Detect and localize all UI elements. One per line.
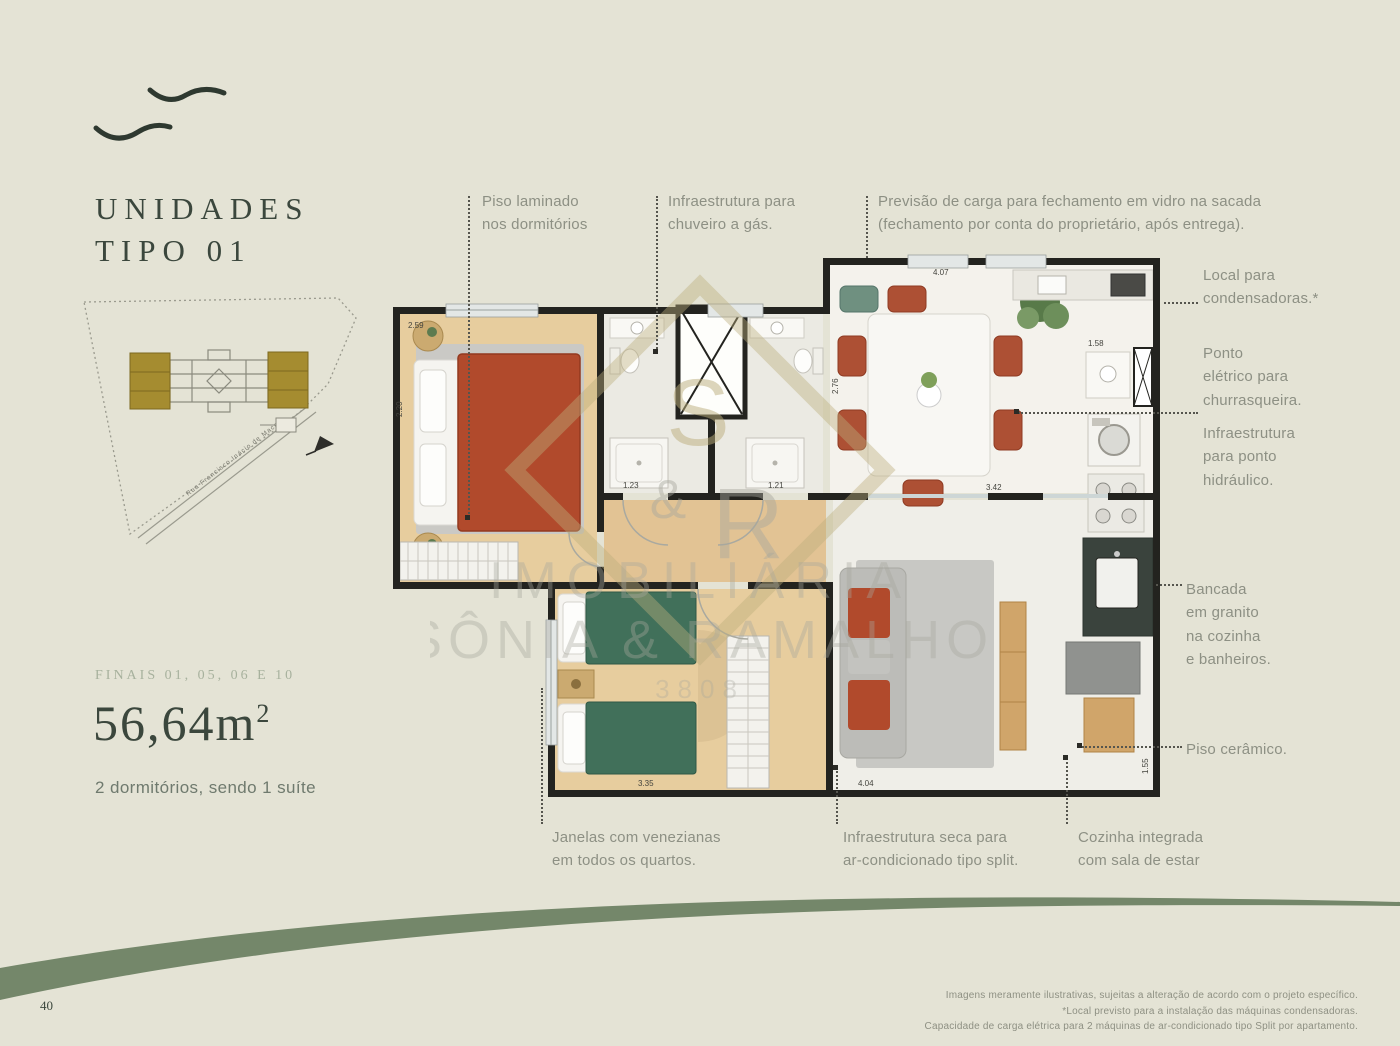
disclaimer-line3: Capacidade de carga elétrica para 2 máqu… [798,1019,1358,1035]
finais-label: FINAIS 01, 05, 06 E 10 [95,668,295,684]
callout-ponto-hidraulico: Infraestrutura para ponto hidráulico. [1203,422,1295,492]
callout-churrasqueira: Ponto elétrico para churrasqueira. [1203,342,1302,412]
site-key-plan: Rua Francisco Inácio de Macedo [70,290,380,550]
wood-cabinet [1084,698,1134,752]
leader-split [836,768,838,824]
page-number: 40 [40,998,53,1014]
gray-cabinet [1066,642,1140,694]
leader-dot [1063,755,1068,760]
callout-chuveiro-gas: Infraestrutura para chuveiro a gás. [668,190,795,237]
birds-logo-icon [92,74,232,150]
callout-condensadoras: Local para condensadoras.* [1203,264,1319,311]
leader-dot [1014,409,1019,414]
building-footprint [170,350,268,412]
leader-dot [1077,743,1082,748]
bedroom2-bed1 [586,592,696,664]
unit-area: 56,64m2 [93,694,269,752]
bedroom2-bed2 [586,702,696,774]
unit-description: 2 dormitórios, sendo 1 suíte [95,778,316,798]
leader-cozinha [1066,758,1068,824]
barbecue-grill [1111,274,1145,296]
svg-text:2.59: 2.59 [408,321,424,330]
north-arrow-icon [306,436,334,455]
svg-text:1.23: 1.23 [623,481,639,490]
disclaimer: Imagens meramente ilustrativas, sujeitas… [798,988,1358,1035]
disclaimer-line1: Imagens meramente ilustrativas, sujeitas… [798,988,1358,1004]
svg-text:4.04: 4.04 [858,779,874,788]
leader-piso-ceramico [1082,746,1182,748]
leader-condensadoras [1164,302,1198,304]
stove [1088,474,1144,532]
page-title: UNIDADES TIPO 01 [95,188,309,272]
floor-plan: 2.59 2.20 1.23 1.21 4.07 2.76 1.58 3.42 … [388,252,1163,802]
disclaimer-line2: *Local previsto para a instalação das má… [798,1004,1358,1020]
page-title-line2: TIPO 01 [95,230,309,272]
svg-text:3.35: 3.35 [638,779,654,788]
svg-text:3.42: 3.42 [986,483,1002,492]
sideboard [1000,602,1026,750]
hall-floor [604,500,826,582]
shaft [678,307,745,417]
callout-piso-laminado: Piso laminado nos dormitórios [482,190,588,237]
svg-text:1.55: 1.55 [1141,758,1150,774]
plot-boundary [84,298,356,534]
svg-text:1.58: 1.58 [1088,339,1104,348]
street-label: Rua Francisco Inácio de Macedo [185,415,288,497]
leader-churrasqueira [1018,412,1198,414]
leader-piso-laminado [468,196,470,518]
suite-bed [458,354,580,531]
svg-text:1.21: 1.21 [768,481,784,490]
leader-dot [833,765,838,770]
svg-text:2.20: 2.20 [395,401,404,417]
leader-chuveiro [656,196,658,352]
leader-sacada [866,196,868,258]
callout-piso-ceramico: Piso cerâmico. [1186,738,1287,761]
unit-area-sup: 2 [256,699,269,728]
annex-block [276,418,296,432]
page-title-line1: UNIDADES [95,188,309,230]
unit-area-value: 56,64m [93,695,256,751]
callout-bancada-granito: Bancada em granito na cozinha e banheiro… [1186,578,1271,671]
leader-bancada [1156,584,1182,586]
svg-text:2.76: 2.76 [831,378,840,394]
leader-dot [653,349,658,354]
brochure-page: { "page": { "page_number": "40" }, "head… [0,0,1400,1046]
svg-text:4.07: 4.07 [933,268,949,277]
leader-dot [465,515,470,520]
leader-janelas [541,688,543,824]
callout-sacada-vidro: Previsão de carga para fechamento em vid… [878,190,1348,237]
